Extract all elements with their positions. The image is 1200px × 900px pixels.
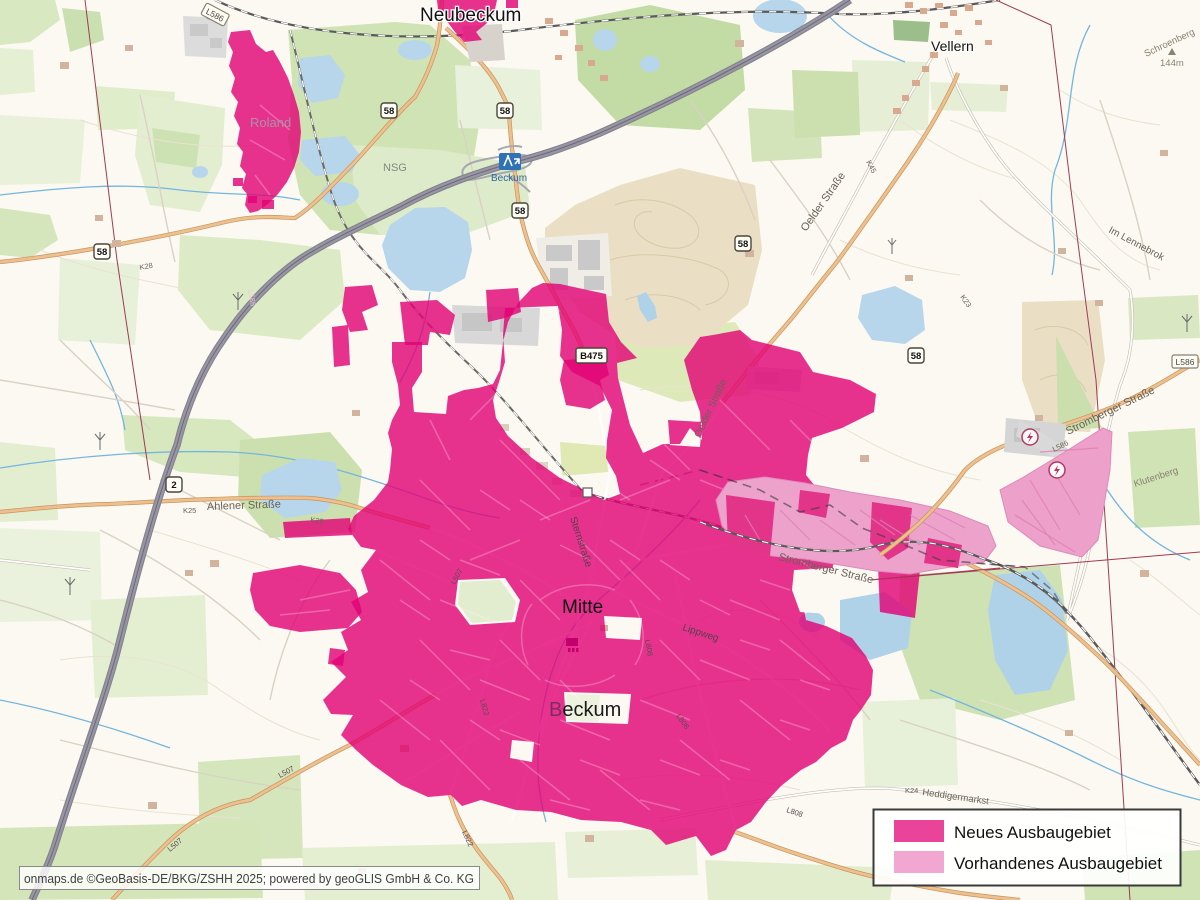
svg-text:Neues Ausbaugebiet: Neues Ausbaugebiet <box>954 823 1111 842</box>
svg-text:Mitte: Mitte <box>562 597 603 618</box>
svg-text:58: 58 <box>515 206 526 217</box>
svg-text:Beckum: Beckum <box>491 173 527 184</box>
svg-text:58: 58 <box>384 106 395 117</box>
svg-text:Neubeckum: Neubeckum <box>420 5 521 26</box>
svg-text:144m: 144m <box>1160 58 1184 69</box>
svg-text:B475: B475 <box>580 351 603 362</box>
svg-text:Beckum: Beckum <box>549 699 621 721</box>
svg-text:NSG: NSG <box>383 162 407 174</box>
svg-text:onmaps.de ©GeoBasis-DE/BKG/ZSH: onmaps.de ©GeoBasis-DE/BKG/ZSHH 2025; po… <box>24 872 474 886</box>
svg-text:Vorhandenes Ausbaugebiet: Vorhandenes Ausbaugebiet <box>954 854 1162 873</box>
svg-text:Roland: Roland <box>250 115 291 130</box>
svg-text:K25: K25 <box>183 506 196 515</box>
svg-text:58: 58 <box>911 351 922 362</box>
svg-text:Vellern: Vellern <box>931 38 974 54</box>
svg-text:58: 58 <box>738 239 749 250</box>
svg-text:58: 58 <box>500 106 511 117</box>
svg-text:2: 2 <box>171 480 176 491</box>
svg-text:K24: K24 <box>905 786 918 795</box>
svg-text:L586: L586 <box>1176 357 1195 367</box>
svg-text:58: 58 <box>97 247 108 258</box>
